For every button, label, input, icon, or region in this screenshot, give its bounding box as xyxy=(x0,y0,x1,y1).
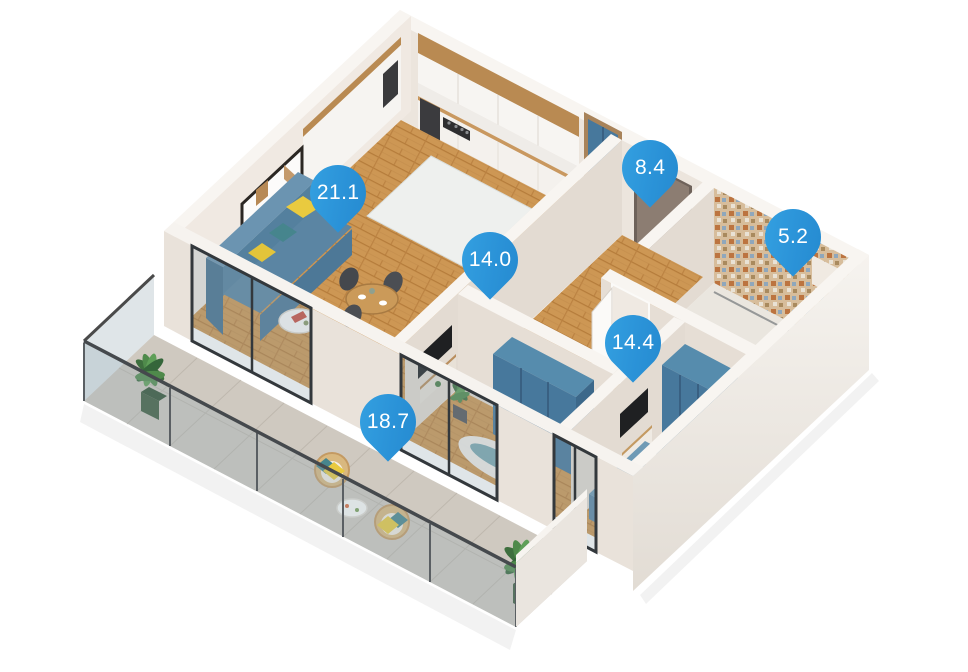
pin-hallway-label: 8.4 xyxy=(635,156,665,180)
floor-plan-stage: 21.1 8.4 5.2 14.0 14.4 18.7 xyxy=(0,0,968,672)
pin-living-kitchen-label: 21.1 xyxy=(317,181,359,205)
pin-bedroom-1-label: 14.0 xyxy=(469,248,511,272)
pin-balcony-label: 18.7 xyxy=(367,410,409,434)
pin-bedroom-2-label: 14.4 xyxy=(612,331,654,355)
pin-bathroom-label: 5.2 xyxy=(778,225,808,249)
floor-plan-illustration xyxy=(0,0,968,672)
